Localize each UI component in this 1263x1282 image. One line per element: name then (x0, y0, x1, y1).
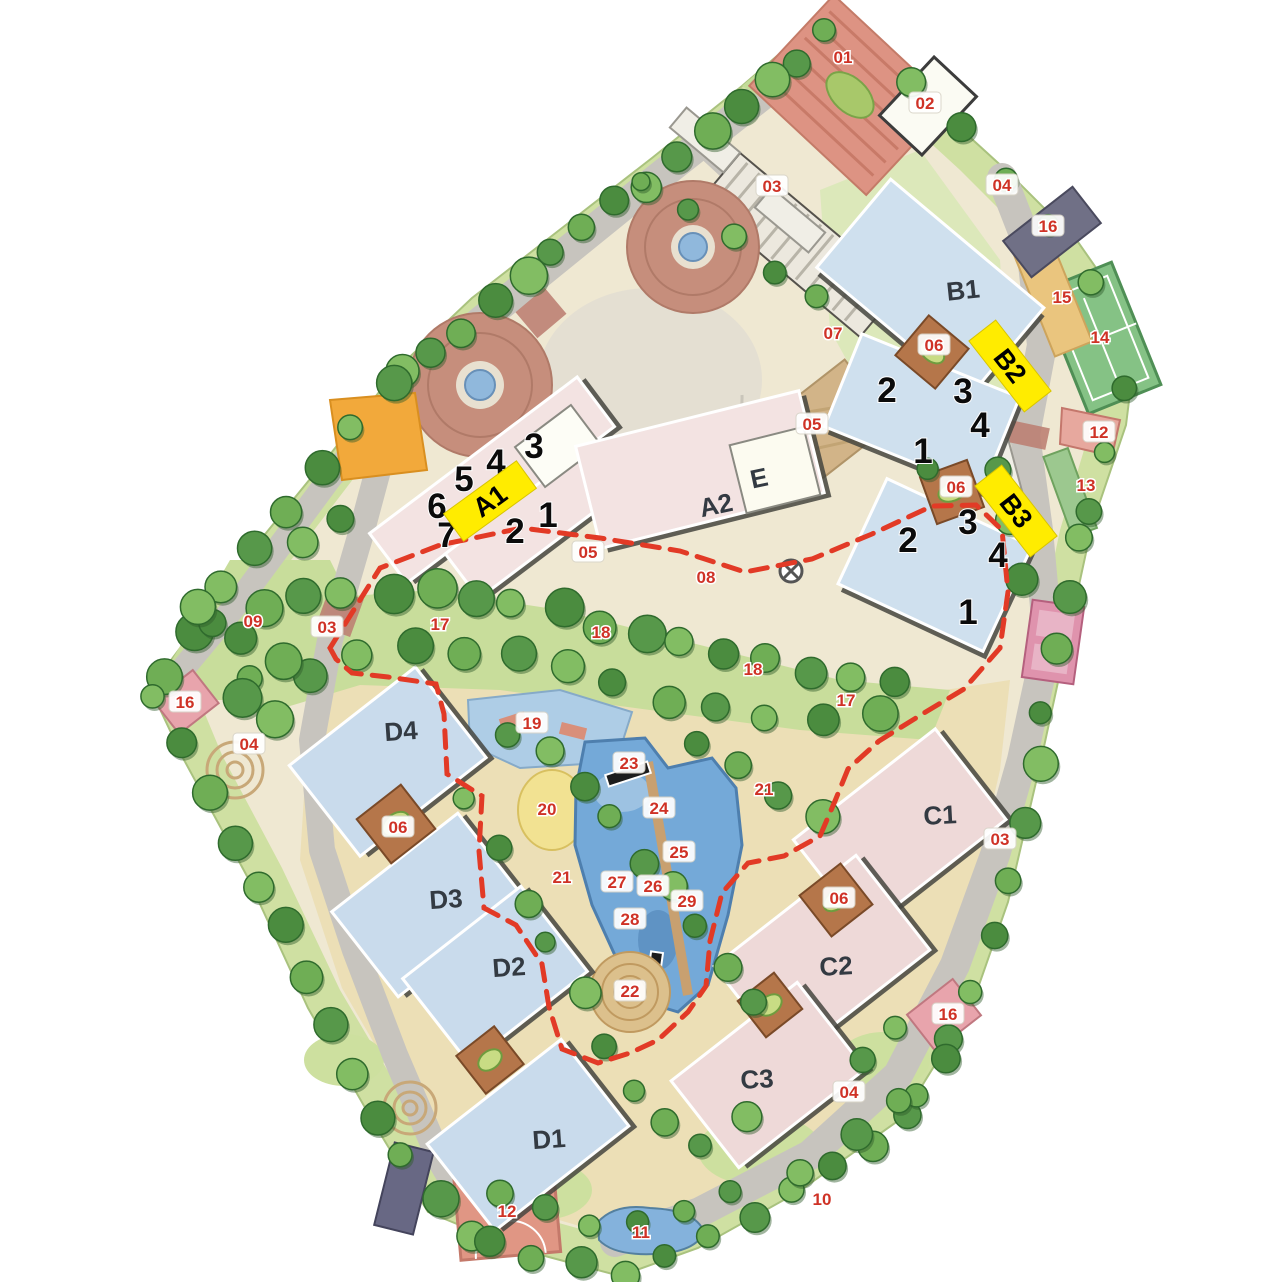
building-label-d2: D2 (491, 951, 526, 983)
tree-icon (764, 261, 787, 284)
amenity-marker: 10 (813, 1190, 832, 1209)
tree-icon (546, 588, 584, 626)
building-label-d1: D1 (531, 1123, 566, 1155)
tree-icon (611, 1261, 639, 1282)
building-label-c1: C1 (923, 799, 958, 831)
amenity-marker: 16 (1032, 215, 1064, 236)
amenity-marker-label: 28 (621, 910, 640, 929)
amenity-marker-label: 09 (244, 612, 263, 631)
amenity-marker: 03 (311, 616, 343, 637)
tree-icon (995, 868, 1020, 893)
amenity-marker-label: 06 (947, 478, 966, 497)
tree-icon (662, 142, 692, 172)
amenity-marker: 04 (833, 1081, 865, 1102)
amenity-marker-label: 04 (240, 735, 259, 754)
amenity-marker-label: 02 (916, 94, 935, 113)
tree-icon (629, 615, 666, 652)
unit-number-a1-5: 5 (454, 460, 473, 499)
unit-number-b3-2: 2 (898, 521, 917, 560)
tree-icon (683, 914, 706, 937)
amenity-marker-label: 07 (824, 324, 843, 343)
building-label-d3: D3 (428, 883, 463, 915)
amenity-marker: 21 (755, 780, 774, 799)
tree-icon (257, 701, 294, 738)
tree-icon (624, 1080, 645, 1101)
amenity-marker-label: 05 (803, 415, 822, 434)
amenity-marker-label: 23 (620, 754, 639, 773)
tree-icon (1095, 442, 1115, 462)
tree-icon (244, 872, 274, 902)
amenity-marker: 04 (986, 174, 1018, 195)
tree-icon (819, 1152, 846, 1179)
tree-icon (787, 1160, 813, 1186)
amenity-marker-label: 16 (176, 693, 195, 712)
tree-icon (709, 639, 739, 669)
tree-icon (502, 636, 537, 671)
tree-icon (695, 113, 731, 149)
amenity-marker-label: 13 (1077, 476, 1096, 495)
tree-icon (1076, 499, 1101, 524)
tree-icon (535, 932, 555, 952)
amenity-marker-label: 01 (834, 48, 853, 67)
tree-icon (418, 569, 457, 608)
tree-icon (837, 663, 865, 691)
unit-number-a1-2: 2 (505, 512, 524, 551)
tree-icon (740, 1203, 770, 1233)
tree-icon (325, 578, 355, 608)
tree-icon (725, 752, 751, 778)
amenity-marker-label: 11 (632, 1223, 650, 1242)
amenity-marker: 08 (697, 568, 716, 587)
amenity-marker: 12 (498, 1202, 517, 1221)
tree-icon (755, 62, 789, 96)
tree-icon (685, 732, 709, 756)
tree-icon (1078, 270, 1103, 295)
amenity-marker-label: 27 (608, 873, 627, 892)
tree-icon (653, 1245, 675, 1267)
amenity-marker: 12 (1083, 421, 1115, 442)
amenity-marker-label: 06 (389, 818, 408, 837)
amenity-marker-label: 29 (678, 892, 697, 911)
amenity-marker-label: 16 (939, 1005, 958, 1024)
amenity-marker: 18 (592, 623, 611, 642)
amenity-marker-label: 05 (579, 543, 598, 562)
amenity-marker: 29 (671, 890, 703, 911)
amenity-marker: 06 (382, 816, 414, 837)
unit-number-b3-4: 4 (988, 536, 1008, 575)
unit-number-b2-1: 1 (913, 432, 932, 471)
tree-icon (398, 628, 434, 664)
amenity-marker: 05 (572, 541, 604, 562)
building-label-c2: C2 (819, 950, 854, 982)
tree-icon (982, 922, 1008, 948)
tree-icon (518, 1246, 543, 1271)
amenity-marker: 02 (909, 92, 941, 113)
tree-icon (884, 1016, 907, 1039)
tree-icon (678, 199, 699, 220)
amenity-marker-label: 03 (763, 177, 782, 196)
tree-icon (579, 1215, 600, 1236)
tree-icon (598, 805, 621, 828)
tree-icon (600, 186, 629, 215)
tree-icon (487, 835, 512, 860)
tree-icon (223, 679, 262, 718)
building-label-d4: D4 (383, 715, 419, 747)
amenity-marker-label: 18 (744, 660, 763, 679)
tree-icon (447, 319, 475, 347)
tree-icon (497, 589, 524, 616)
tree-icon (714, 954, 742, 982)
amenity-marker: 15 (1053, 288, 1072, 307)
tree-icon (479, 284, 513, 318)
tree-icon (732, 1102, 762, 1132)
tree-icon (536, 737, 564, 765)
amenity-marker-label: 04 (840, 1083, 859, 1102)
unit-number-b2-4: 4 (970, 406, 990, 445)
tree-icon (337, 1059, 368, 1090)
tree-icon (808, 704, 839, 735)
tree-icon (238, 531, 272, 565)
tree-icon (722, 224, 747, 249)
tree-icon (1006, 563, 1038, 595)
tree-icon (288, 527, 318, 557)
tree-icon (338, 415, 363, 440)
unit-number-b3-3: 3 (958, 503, 977, 542)
tree-icon (653, 686, 685, 718)
amenity-marker: 09 (244, 612, 263, 631)
amenity-marker: 14 (1091, 328, 1110, 347)
amenity-marker-label: 12 (498, 1202, 517, 1221)
building-label-c3: C3 (740, 1063, 775, 1095)
tree-icon (568, 214, 594, 240)
unit-number-a1-3: 3 (524, 427, 543, 466)
tree-icon (719, 1181, 741, 1203)
amenity-marker: 11 (632, 1223, 650, 1242)
amenity-marker-label: 08 (697, 568, 716, 587)
amenity-marker: 24 (643, 797, 675, 818)
amenity-marker: 13 (1077, 476, 1096, 495)
tree-icon (813, 19, 836, 42)
tree-icon (752, 705, 777, 730)
amenity-marker-label: 16 (1039, 217, 1058, 236)
amenity-marker: 06 (918, 334, 950, 355)
site-plan-map: 0102030416151407060512130605080903171818… (0, 0, 1263, 1282)
tree-icon (510, 257, 547, 294)
amenity-marker-label: 25 (670, 843, 689, 862)
tree-icon (571, 773, 599, 801)
tree-icon (665, 628, 693, 656)
tree-icon (388, 1143, 412, 1167)
tree-icon (218, 826, 252, 860)
tree-icon (850, 1047, 875, 1072)
tree-icon (305, 451, 339, 485)
tree-icon (570, 977, 601, 1008)
tree-icon (423, 1181, 459, 1217)
tree-icon (741, 989, 767, 1015)
amenity-marker-label: 26 (644, 877, 663, 896)
amenity-marker-label: 19 (523, 714, 542, 733)
amenity-marker-label: 22 (621, 982, 640, 1001)
tree-icon (880, 667, 909, 696)
tree-icon (271, 496, 302, 527)
amenity-marker: 16 (932, 1003, 964, 1024)
amenity-marker: 03 (756, 175, 788, 196)
tree-icon (290, 961, 322, 993)
tree-icon (1066, 524, 1093, 551)
tree-icon (841, 1119, 872, 1150)
tree-icon (702, 693, 730, 721)
amenity-marker: 21 (553, 868, 572, 887)
tree-icon (268, 907, 303, 942)
amenity-marker-label: 03 (991, 830, 1010, 849)
amenity-marker-label: 03 (318, 618, 337, 637)
unit-number-b2-2: 2 (877, 371, 896, 410)
amenity-marker-label: 18 (592, 623, 611, 642)
building-label-b1: B1 (945, 273, 981, 306)
amenity-marker-label: 21 (755, 780, 774, 799)
tree-icon (887, 1089, 911, 1113)
amenity-marker: 07 (824, 324, 843, 343)
tree-icon (630, 850, 658, 878)
amenity-marker: 23 (613, 752, 645, 773)
tree-icon (697, 1225, 720, 1248)
tree-icon (673, 1201, 694, 1222)
tree-icon (795, 657, 826, 688)
amenity-marker-label: 20 (538, 800, 557, 819)
amenity-marker: 05 (796, 413, 828, 434)
tree-icon (1029, 702, 1051, 724)
amenity-marker: 26 (637, 875, 669, 896)
unit-number-b3-1: 1 (958, 593, 977, 632)
amenity-marker-label: 17 (837, 691, 856, 710)
tree-icon (1041, 633, 1072, 664)
tree-icon (515, 891, 542, 918)
amenity-marker-label: 06 (830, 889, 849, 908)
tree-icon (1054, 581, 1087, 614)
amenity-marker: 19 (516, 712, 548, 733)
tree-icon (167, 728, 197, 758)
amenity-marker: 03 (984, 828, 1016, 849)
tree-icon (592, 1034, 616, 1058)
amenity-marker: 28 (614, 908, 646, 929)
tree-icon (632, 173, 650, 191)
tree-icon (932, 1044, 960, 1072)
amenity-marker-label: 04 (993, 176, 1012, 195)
tree-icon (959, 981, 982, 1004)
tree-icon (566, 1247, 597, 1278)
amenity-marker-label: 10 (813, 1190, 832, 1209)
tree-icon (689, 1134, 711, 1156)
tree-icon (651, 1109, 678, 1136)
amenity-marker: 01 (834, 48, 853, 67)
amenity-marker-label: 15 (1053, 288, 1072, 307)
tree-icon (361, 1101, 395, 1135)
amenity-marker: 17 (431, 615, 450, 634)
amenity-marker-label: 12 (1090, 423, 1109, 442)
amenity-marker: 17 (837, 691, 856, 710)
tree-icon (141, 685, 164, 708)
amenity-marker-label: 17 (431, 615, 450, 634)
amenity-marker: 20 (538, 800, 557, 819)
amenity-marker: 27 (601, 871, 633, 892)
tree-icon (416, 338, 445, 367)
tree-icon (599, 669, 626, 696)
amenity-marker-label: 14 (1091, 328, 1110, 347)
tree-icon (180, 589, 215, 624)
tree-icon (314, 1008, 348, 1042)
tree-icon (475, 1226, 505, 1256)
tree-icon (947, 113, 976, 142)
tree-icon (265, 643, 301, 679)
tree-icon (533, 1195, 558, 1220)
tree-icon (448, 638, 480, 670)
amenity-marker-label: 21 (553, 868, 572, 887)
amenity-marker: 04 (233, 733, 265, 754)
tree-icon (1112, 376, 1136, 400)
amenity-marker: 06 (940, 476, 972, 497)
tree-icon (805, 285, 828, 308)
amenity-marker: 25 (663, 841, 695, 862)
tree-icon (375, 574, 414, 613)
tree-icon (552, 650, 585, 683)
tree-icon (327, 506, 354, 533)
tree-icon (193, 775, 228, 810)
tree-icon (459, 581, 495, 617)
amenity-marker: 22 (614, 980, 646, 1001)
tree-icon (725, 90, 759, 124)
tree-icon (863, 696, 898, 731)
tree-icon (377, 365, 412, 400)
amenity-marker: 16 (169, 691, 201, 712)
amenity-marker-label: 06 (925, 336, 944, 355)
tree-icon (1024, 746, 1059, 781)
unit-number-a1-1: 1 (538, 496, 557, 535)
tree-icon (286, 579, 321, 614)
site-plan-svg: 0102030416151407060512130605080903171818… (0, 0, 1263, 1282)
amenity-marker-label: 24 (650, 799, 669, 818)
amenity-marker: 06 (823, 887, 855, 908)
amenity-marker: 18 (744, 660, 763, 679)
